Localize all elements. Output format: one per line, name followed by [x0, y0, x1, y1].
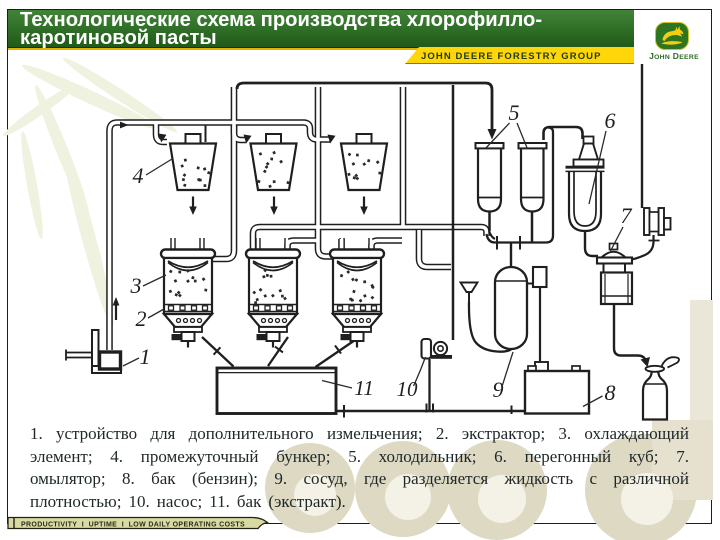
svg-text:9: 9	[493, 377, 504, 402]
svg-text:3: 3	[130, 273, 142, 298]
svg-text:7: 7	[621, 203, 633, 228]
svg-text:8: 8	[605, 380, 616, 405]
svg-text:PRODUCTIVITY I UPTIME I LO: PRODUCTIVITY I UPTIME I LOW DAILY OPERAT…	[21, 522, 245, 529]
svg-text:5: 5	[509, 100, 520, 125]
svg-text:6: 6	[605, 108, 616, 133]
svg-text:11: 11	[354, 376, 373, 400]
svg-text:2: 2	[136, 306, 147, 331]
svg-text:1: 1	[140, 344, 151, 369]
svg-text:10: 10	[397, 377, 419, 401]
svg-text:4: 4	[133, 163, 144, 188]
